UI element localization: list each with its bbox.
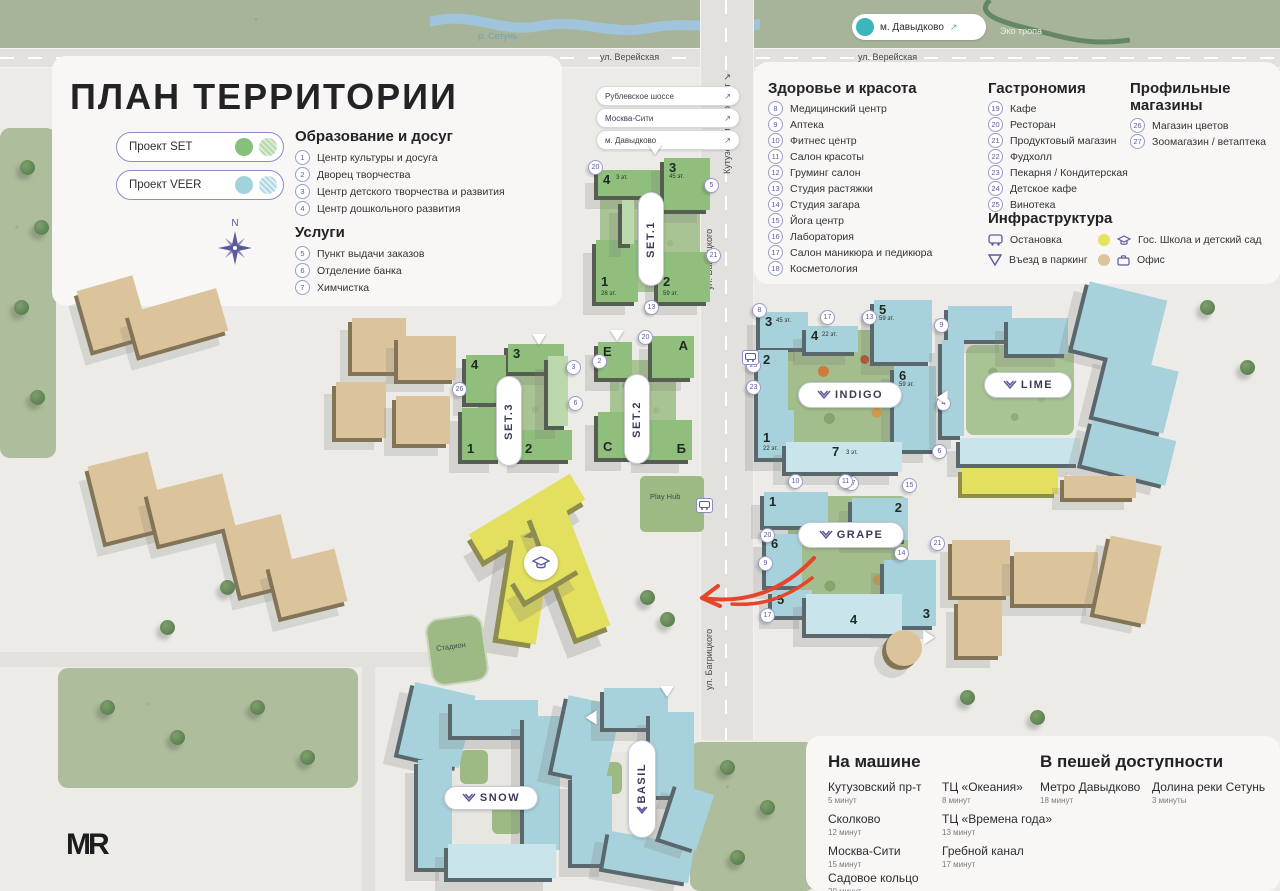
list-item: Косметология	[790, 263, 858, 275]
badge-label: Москва-Сити	[605, 114, 653, 123]
school-icon	[532, 556, 550, 570]
section-gastronomy-header: Гастрономия	[988, 80, 1086, 97]
territory-map: р. Сетунь Эко тропа м. Давыдково ↗ ул. В…	[0, 0, 1280, 891]
lime-building[interactable]	[960, 438, 1080, 464]
num-icon: 9	[768, 117, 783, 132]
amenity-marker[interactable]: 21	[706, 248, 721, 263]
parking-entrance-marker[interactable]	[586, 711, 597, 725]
external-arrow-icon: ↗	[950, 22, 958, 33]
num-icon: 13	[768, 181, 783, 196]
section-health-header: Здоровье и красота	[768, 80, 917, 97]
office-color-swatch	[1098, 254, 1110, 266]
school-icon	[1117, 235, 1131, 246]
set-solid-swatch	[235, 138, 253, 156]
set1-building-4[interactable]: 43 эт.	[598, 170, 668, 196]
metro-davydkovo-badge[interactable]: м. Давыдково ↗	[852, 14, 986, 40]
lime-block-pill[interactable]: LIME	[984, 372, 1072, 398]
amenity-marker[interactable]: 6	[932, 444, 947, 459]
route-name: ТЦ «Океания»	[942, 780, 1023, 794]
list-item: Магазин цветов	[1152, 120, 1229, 132]
list-item: Груминг салон	[790, 167, 861, 179]
river-label: р. Сетунь	[478, 31, 518, 41]
num-icon: 12	[768, 165, 783, 180]
route-time: 5 минут	[828, 796, 922, 805]
list-item: Химчистка	[317, 282, 369, 294]
route-time: 12 минут	[828, 828, 880, 837]
block-name: SET.1	[645, 221, 657, 258]
list-item: Ресторан	[1010, 119, 1056, 131]
block-name: BASIL	[636, 763, 648, 804]
amenity-marker[interactable]: 21	[930, 536, 945, 551]
num-icon: 24	[988, 181, 1003, 196]
amenity-marker[interactable]: 26	[452, 382, 467, 397]
list-item: Пекарня / Кондитерская	[1010, 167, 1128, 179]
amenity-marker[interactable]: 23	[746, 380, 761, 395]
badge-rublevskoe[interactable]: Рублевское шоссе↗	[596, 86, 740, 106]
compass-icon: N	[212, 214, 258, 270]
existing-building[interactable]	[958, 600, 1002, 656]
parking-entrance-marker[interactable]	[660, 686, 674, 697]
basil-block-pill[interactable]: BASIL	[628, 740, 656, 838]
routes-car-header: На машине	[828, 752, 921, 772]
list-item: Пункт выдачи заказов	[317, 248, 424, 260]
list-item: Продуктовый магазин	[1010, 135, 1116, 147]
list-item: Фудхолл	[1010, 151, 1052, 163]
list-item: Офис	[1137, 254, 1165, 266]
num-icon: 14	[768, 197, 783, 212]
num-icon: 15	[768, 213, 783, 228]
parking-entrance-marker[interactable]	[532, 334, 546, 345]
mr-logo: MR	[66, 828, 107, 862]
list-item: Студия загара	[790, 199, 860, 211]
legend-set-label: Проект SET	[129, 141, 229, 153]
routes-walk-header: В пешей доступности	[1040, 752, 1223, 772]
set3-block-pill[interactable]: SET.3	[496, 376, 522, 466]
list-item: Кафе	[1010, 103, 1036, 115]
num-icon: 16	[768, 229, 783, 244]
highlight-arrow	[686, 548, 818, 622]
existing-yellow-building[interactable]	[962, 468, 1058, 494]
amenity-marker[interactable]: 15	[902, 478, 917, 493]
existing-round-building[interactable]	[886, 630, 922, 666]
lime-building[interactable]	[1093, 354, 1178, 434]
route-time: 8 минут	[942, 796, 1023, 805]
num-icon: 27	[1130, 134, 1145, 149]
route-name: Садовое кольцо	[828, 871, 919, 885]
basil-building[interactable]	[650, 712, 694, 796]
page-title: ПЛАН ТЕРРИТОРИИ	[70, 76, 458, 118]
set1-building-low[interactable]	[622, 200, 634, 244]
route-time: 15 минут	[828, 860, 901, 869]
set-hatch-swatch	[259, 138, 277, 156]
block-name: SNOW	[480, 792, 520, 804]
amenity-marker[interactable]: 8	[752, 303, 767, 318]
set2-building-b[interactable]: Б	[644, 420, 692, 460]
indigo-building-3[interactable]: 345 эт.	[760, 312, 808, 348]
project-logo-icon	[1003, 380, 1017, 390]
lime-building[interactable]	[942, 340, 964, 436]
amenity-marker[interactable]: 2	[592, 354, 607, 369]
parking-entrance-marker[interactable]	[924, 631, 935, 645]
amenity-marker[interactable]: 13	[862, 310, 877, 325]
route-time: 17 минут	[942, 860, 1024, 869]
existing-building[interactable]	[1064, 476, 1136, 498]
set1-building-1[interactable]: 128 эт.	[596, 240, 638, 302]
existing-building[interactable]	[1094, 535, 1161, 624]
amenity-marker[interactable]: 5	[704, 178, 719, 193]
external-arrow-icon: ↗	[724, 92, 731, 101]
amenity-marker[interactable]: 3	[566, 360, 581, 375]
existing-building[interactable]	[1014, 552, 1098, 604]
metro-badge-label: м. Давыдково	[880, 22, 944, 33]
list-item: Въезд в паркинг	[1009, 254, 1088, 266]
legend-veer-label: Проект VEER	[129, 179, 229, 191]
parking-entrance-marker[interactable]	[610, 330, 624, 341]
set1-building-2[interactable]: 259 эт.	[658, 252, 710, 302]
section-services-header: Услуги	[295, 224, 345, 241]
indigo-building-2[interactable]: 2	[758, 350, 788, 410]
project-logo-icon	[817, 390, 831, 400]
block-name: SET.2	[631, 401, 643, 438]
badge-metro-davydkovo[interactable]: м. Давыдково↗	[596, 130, 740, 150]
list-item: Гос. Школа и детский сад	[1138, 234, 1262, 246]
grape-block-pill[interactable]: GRAPE	[798, 522, 904, 548]
num-icon: 5	[295, 246, 310, 261]
bus-stop-icon	[988, 234, 1003, 246]
park-bottom-center	[690, 742, 815, 891]
amenity-marker[interactable]: 10	[788, 474, 803, 489]
num-icon: 3	[295, 184, 310, 199]
set1-block-pill[interactable]: SET.1	[638, 192, 664, 286]
block-name: GRAPE	[837, 529, 884, 541]
num-icon: 21	[988, 133, 1003, 148]
amenity-marker[interactable]: 17	[820, 310, 835, 325]
list-item: Центр культуры и досуга	[317, 152, 438, 164]
external-arrow-icon: ↗	[724, 136, 731, 145]
legend-project-veer[interactable]: Проект VEER	[116, 170, 284, 200]
num-icon: 17	[768, 245, 783, 260]
num-icon: 26	[1130, 118, 1145, 133]
route-name: Гребной канал	[942, 844, 1024, 858]
num-icon: 8	[768, 101, 783, 116]
block-name: SET.3	[503, 403, 515, 440]
route-name: ТЦ «Времена года»	[942, 812, 1052, 826]
set2-building-a[interactable]: А	[652, 336, 694, 378]
project-logo-icon	[462, 793, 476, 803]
route-name: Долина реки Сетунь	[1152, 780, 1265, 794]
park-bottom-left	[58, 668, 358, 788]
list-item: Центр детского творчества и развития	[317, 186, 505, 198]
existing-building[interactable]	[396, 396, 450, 444]
list-item: Детское кафе	[1010, 183, 1077, 195]
num-icon: 1	[295, 150, 310, 165]
vereyskaya-label-1: ул. Верейская	[600, 52, 659, 62]
list-item: Фитнес центр	[790, 135, 857, 147]
vereyskaya-label-2: ул. Верейская	[858, 52, 917, 62]
list-item: Дворец творчества	[317, 169, 410, 181]
existing-building[interactable]	[336, 382, 386, 438]
local-road-v	[362, 652, 375, 891]
indigo-building-6[interactable]: 659 эт.	[894, 366, 936, 450]
list-item: Йога центр	[790, 215, 844, 227]
num-icon: 2	[295, 167, 310, 182]
legend-project-set[interactable]: Проект SET	[116, 132, 284, 162]
lime-building[interactable]	[1073, 281, 1168, 368]
num-icon: 4	[295, 201, 310, 216]
list-item: Медицинский центр	[790, 103, 887, 115]
amenity-marker[interactable]: 14	[894, 546, 909, 561]
amenity-marker[interactable]: 11	[838, 474, 853, 489]
snow-building[interactable]	[524, 716, 560, 850]
section-infrastructure-header: Инфраструктура	[988, 210, 1112, 227]
bus-stop-icon[interactable]	[742, 350, 759, 365]
snow-building[interactable]	[418, 760, 452, 868]
list-item: Зоомагазин / ветаптека	[1152, 136, 1266, 148]
snow-building[interactable]	[448, 844, 556, 878]
num-icon: 20	[988, 117, 1003, 132]
num-icon: 19	[988, 101, 1003, 116]
school-color-swatch	[1098, 234, 1110, 246]
office-icon	[1117, 255, 1130, 266]
project-logo-icon	[636, 806, 648, 815]
route-name: Сколково	[828, 812, 880, 826]
num-icon: 18	[768, 261, 783, 276]
lime-building[interactable]	[948, 306, 1012, 340]
school-badge[interactable]	[524, 546, 558, 580]
route-name: Кутузовский пр-т	[828, 780, 922, 794]
amenity-marker[interactable]: 13	[644, 300, 659, 315]
list-item: Отделение банка	[317, 265, 402, 277]
list-item: Аптека	[790, 119, 824, 131]
amenity-marker[interactable]: 20	[588, 160, 603, 175]
num-icon: 7	[295, 280, 310, 295]
indigo-building-4[interactable]: 422 эт.	[806, 326, 858, 352]
num-icon: 6	[295, 263, 310, 278]
svg-text:N: N	[231, 218, 238, 229]
list-item: Центр дошкольного развития	[317, 203, 460, 215]
play-hub-label: Play Hub	[650, 492, 680, 501]
play-hub-area	[640, 476, 704, 532]
existing-building[interactable]	[147, 473, 236, 544]
list-item: Лаборатория	[790, 231, 854, 243]
block-name: INDIGO	[835, 389, 883, 401]
amenity-marker[interactable]: 20	[760, 528, 775, 543]
badge-label: Рублевское шоссе	[605, 92, 674, 101]
veer-solid-swatch	[235, 176, 253, 194]
metro-icon	[856, 18, 874, 36]
route-time: 20 минут	[828, 887, 919, 891]
parking-entrance-marker[interactable]	[937, 391, 948, 405]
park-left	[0, 128, 56, 458]
project-logo-icon	[819, 530, 833, 540]
amenity-marker[interactable]: 6	[568, 396, 583, 411]
veer-hatch-swatch	[259, 176, 277, 194]
amenity-marker[interactable]: 9	[934, 318, 949, 333]
route-time: 18 минут	[1040, 796, 1140, 805]
bus-stop-icon[interactable]	[696, 498, 713, 513]
num-icon: 22	[988, 149, 1003, 164]
parking-entrance-marker[interactable]	[648, 144, 662, 155]
section-education-header: Образование и досуг	[295, 128, 453, 145]
list-item: Студия растяжки	[790, 183, 873, 195]
snow-block-pill[interactable]: SNOW	[444, 786, 538, 810]
lime-building[interactable]	[1008, 318, 1068, 354]
indigo-block-pill[interactable]: INDIGO	[798, 382, 902, 408]
indigo-building-7[interactable]: 73 эт.	[786, 442, 902, 472]
list-item: Винотека	[1010, 199, 1055, 211]
block-name: LIME	[1021, 379, 1053, 391]
route-name: Москва-Сити	[828, 844, 901, 858]
indigo-building-5[interactable]: 559 эт.	[874, 300, 932, 362]
eco-trail-label: Эко тропа	[1000, 26, 1042, 36]
route-time: 13 минут	[942, 828, 1052, 837]
existing-building[interactable]	[952, 540, 1010, 596]
grape-building-4[interactable]: 4	[806, 594, 902, 634]
set2-block-pill[interactable]: SET.2	[624, 374, 650, 464]
list-item: Салон маникюра и педикюра	[790, 247, 932, 259]
num-icon: 23	[988, 165, 1003, 180]
grape-building-1[interactable]: 1	[764, 492, 828, 526]
set3-building-2[interactable]: 2	[520, 430, 572, 460]
num-icon: 10	[768, 133, 783, 148]
list-item: Салон красоты	[790, 151, 864, 163]
num-icon: 11	[768, 149, 783, 164]
route-time: 3 минуты	[1152, 796, 1265, 805]
list-item: Остановка	[1010, 234, 1062, 246]
route-name: Метро Давыдково	[1040, 780, 1140, 794]
external-arrow-icon: ↗	[724, 114, 731, 123]
existing-building[interactable]	[398, 336, 456, 380]
parking-entrance-icon	[988, 254, 1002, 266]
section-shops-header: Профильные магазины	[1130, 80, 1260, 115]
set3-building-low[interactable]	[548, 356, 568, 426]
badge-moscow-city[interactable]: Москва-Сити↗	[596, 108, 740, 128]
amenity-marker[interactable]: 20	[638, 330, 653, 345]
